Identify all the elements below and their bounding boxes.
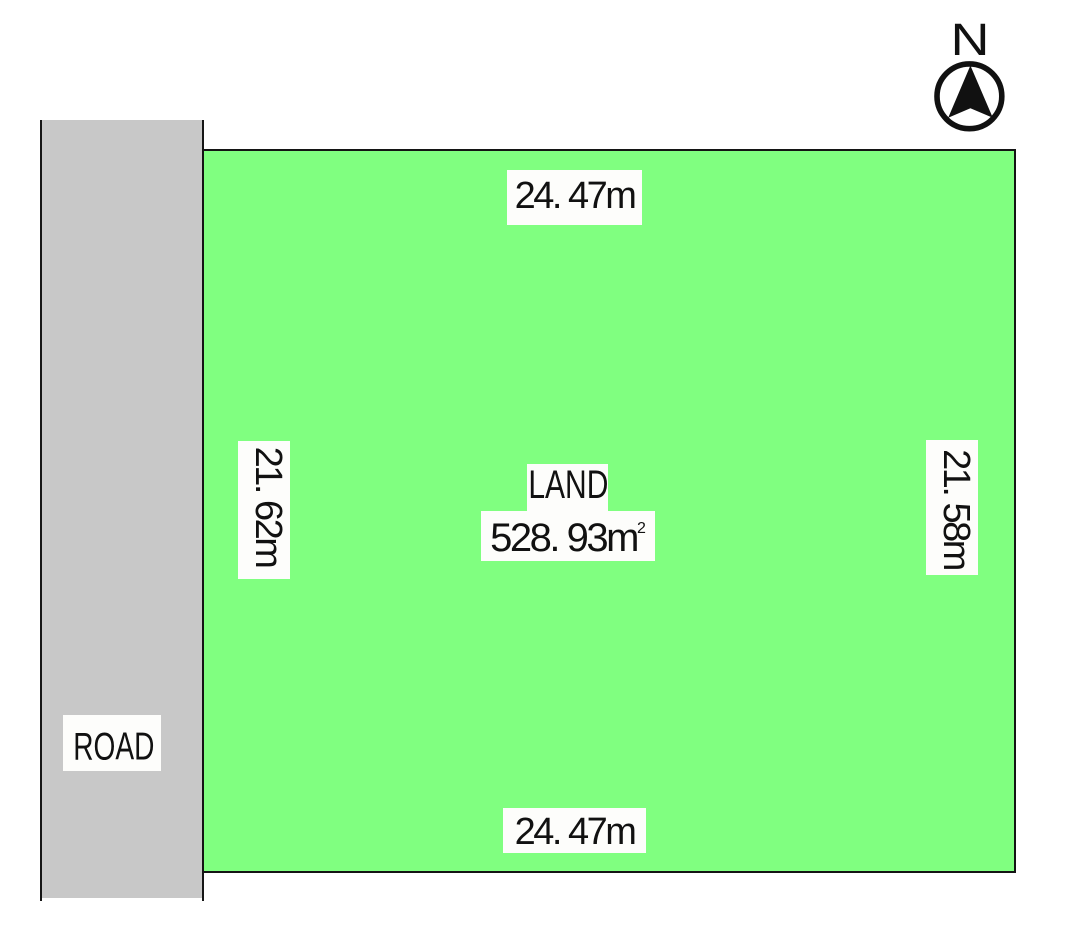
svg-text:N: N	[951, 14, 990, 65]
